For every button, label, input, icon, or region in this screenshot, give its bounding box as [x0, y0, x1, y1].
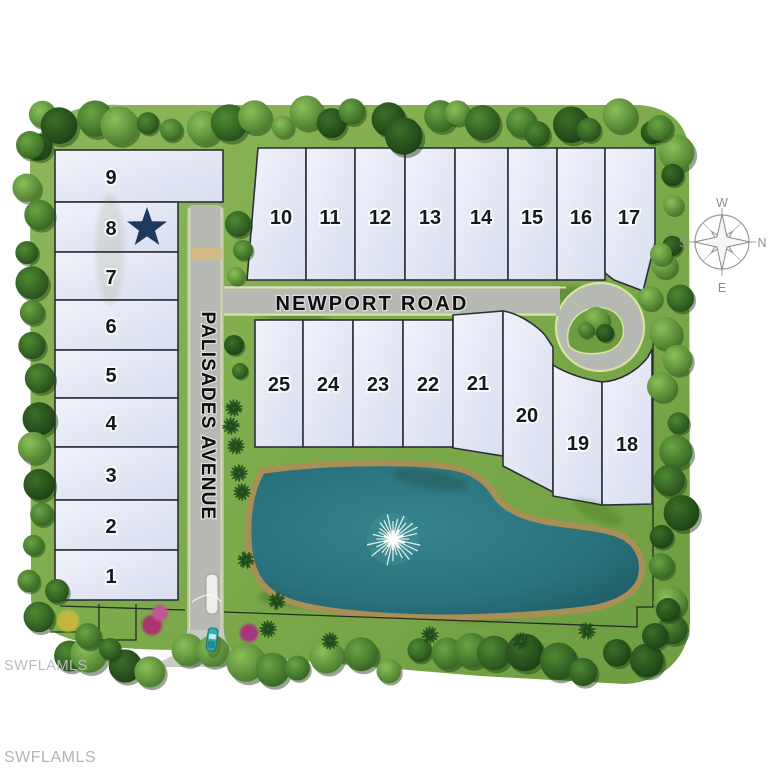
- lot-label-25: 25: [268, 374, 290, 396]
- lot-label-16: 16: [570, 207, 592, 229]
- lot-label-18: 18: [616, 434, 638, 456]
- compass-south-label: S: [679, 236, 687, 250]
- lot-label-20: 20: [516, 405, 538, 427]
- lot-label-8: 8: [105, 218, 116, 240]
- lot-9: [55, 150, 223, 202]
- lot-label-13: 13: [419, 207, 441, 229]
- crosswalk: [192, 248, 222, 259]
- lot-label-12: 12: [369, 207, 391, 229]
- lot-label-3: 3: [105, 465, 116, 487]
- site-plan-page: 9 8 7 6 5 4 3 2 1 10 11 12 13 14 15 16 1…: [0, 0, 768, 768]
- lot-label-24: 24: [317, 374, 340, 396]
- entrance-median: [206, 574, 218, 614]
- lot-20: [503, 311, 553, 492]
- lot-label-15: 15: [521, 207, 543, 229]
- lot-label-7: 7: [105, 267, 116, 289]
- lot-label-19: 19: [567, 433, 589, 455]
- lot-label-10: 10: [270, 207, 292, 229]
- lot-label-1: 1: [105, 566, 116, 588]
- lot-label-22: 22: [417, 374, 439, 396]
- watermark-upper: SWFLAMLS: [4, 658, 88, 674]
- newport-road-label: NEWPORT ROAD: [275, 293, 468, 315]
- watermark-lower: SWFLAMLS: [4, 749, 96, 766]
- compass-west-label: W: [716, 196, 728, 210]
- lot-label-14: 14: [470, 207, 493, 229]
- lot-label-2: 2: [105, 516, 116, 538]
- lot-label-11: 11: [319, 207, 340, 229]
- lot-label-9: 9: [105, 167, 116, 189]
- palisades-avenue-label: PALISADES AVENUE: [197, 312, 218, 521]
- compass-east-label: E: [718, 281, 726, 295]
- lot-label-21: 21: [467, 373, 489, 395]
- lot-label-6: 6: [105, 316, 116, 338]
- lot-label-4: 4: [105, 413, 117, 435]
- lot-label-23: 23: [367, 374, 389, 396]
- lot-label-17: 17: [618, 207, 640, 229]
- compass-north-label: N: [757, 236, 766, 250]
- lot-label-5: 5: [105, 365, 116, 387]
- site-plan-map: 9 8 7 6 5 4 3 2 1 10 11 12 13 14 15 16 1…: [0, 0, 768, 768]
